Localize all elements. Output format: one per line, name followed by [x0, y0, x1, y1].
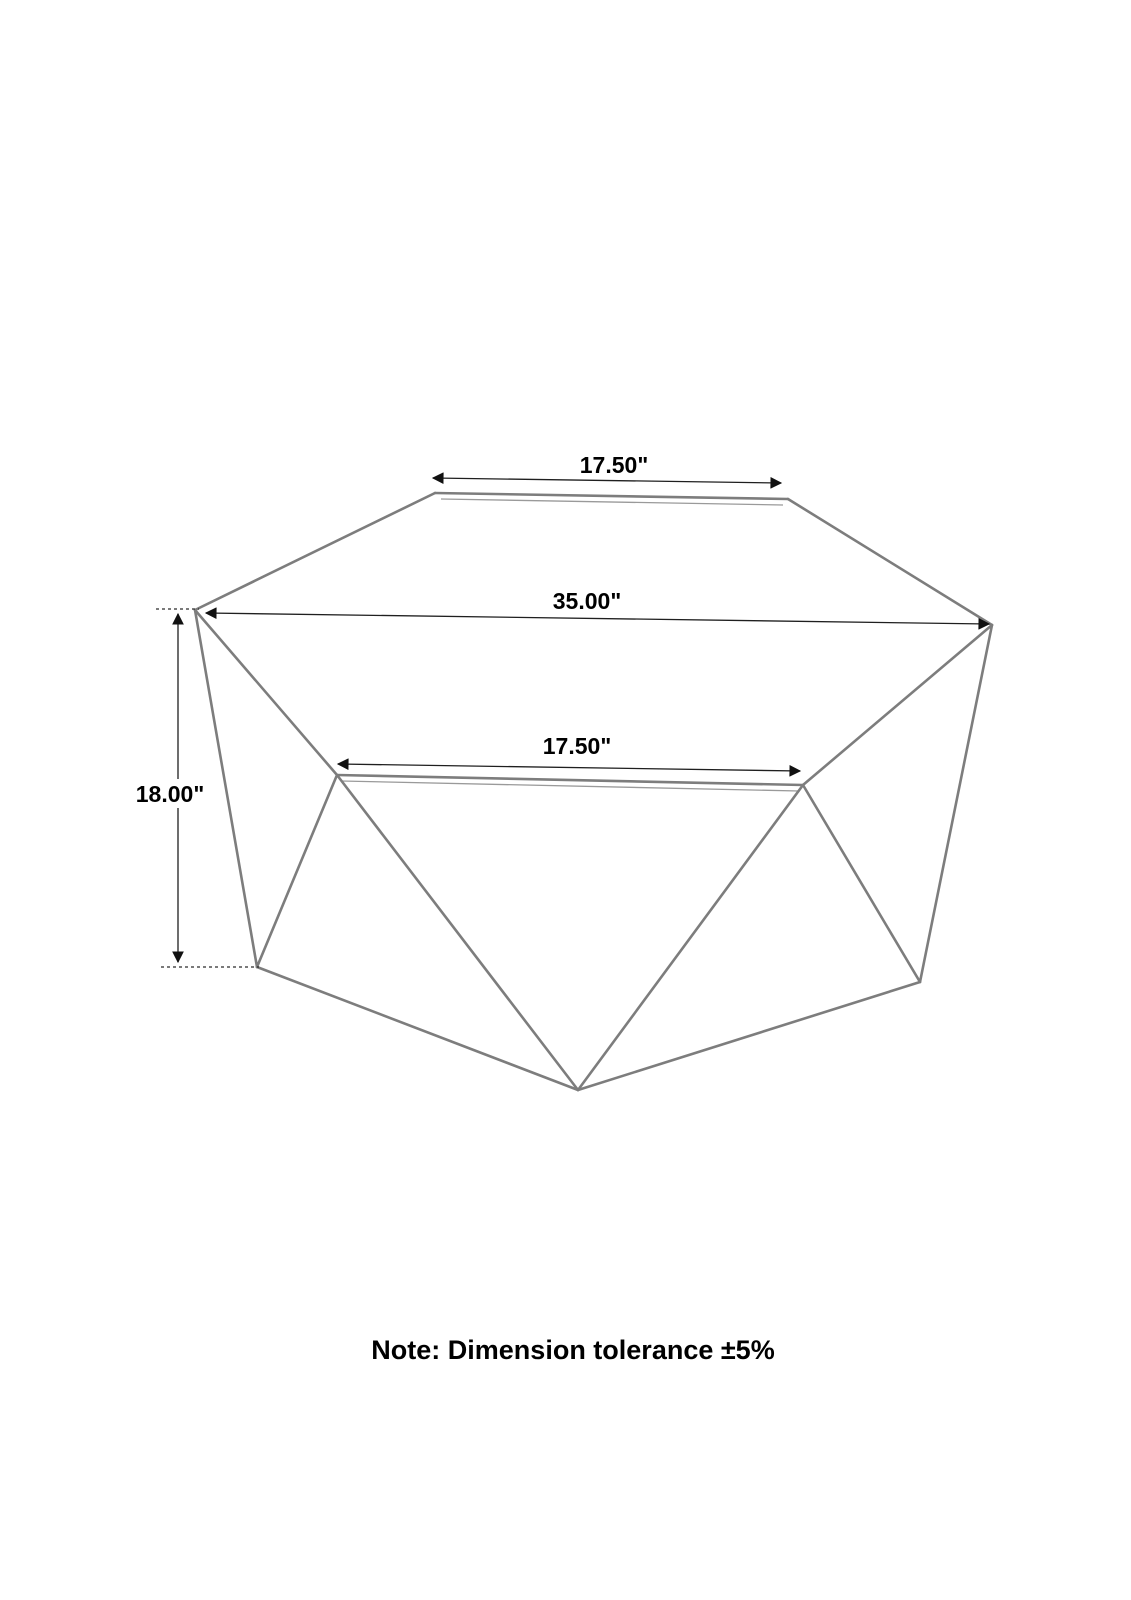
edge-top-front-left — [195, 610, 337, 775]
overall-width-label: 35.00" — [553, 588, 621, 614]
edge-top-left-slope — [195, 493, 435, 610]
edge-top-back-inner — [441, 499, 783, 505]
front-width-dimension-arrow — [338, 764, 800, 771]
edge-top-front — [337, 775, 803, 785]
top-width-dimension-arrow — [433, 478, 781, 483]
tolerance-note: Note: Dimension tolerance ±5% — [371, 1335, 774, 1365]
edge-front-facet-right — [578, 785, 803, 1090]
dimension-diagram: 17.50" 35.00" 17.50" 18.00" Note: Dimens… — [0, 0, 1131, 1600]
table-outline — [195, 493, 992, 1090]
height-label: 18.00" — [136, 781, 204, 807]
front-width-label: 17.50" — [543, 733, 611, 759]
edge-front-left-facet — [257, 775, 337, 967]
edge-right-silhouette — [920, 625, 992, 982]
overall-width-dimension-arrow — [206, 613, 989, 624]
dimension-drawing-canvas: 17.50" 35.00" 17.50" 18.00" Note: Dimens… — [0, 0, 1131, 1600]
dimension-annotations: 17.50" 35.00" 17.50" 18.00" — [135, 452, 989, 967]
edge-front-right-facet — [803, 785, 920, 982]
edge-top-back — [435, 493, 788, 499]
edge-bottom-right — [578, 982, 920, 1090]
top-width-label: 17.50" — [580, 452, 648, 478]
edge-top-right-slope — [788, 499, 992, 625]
